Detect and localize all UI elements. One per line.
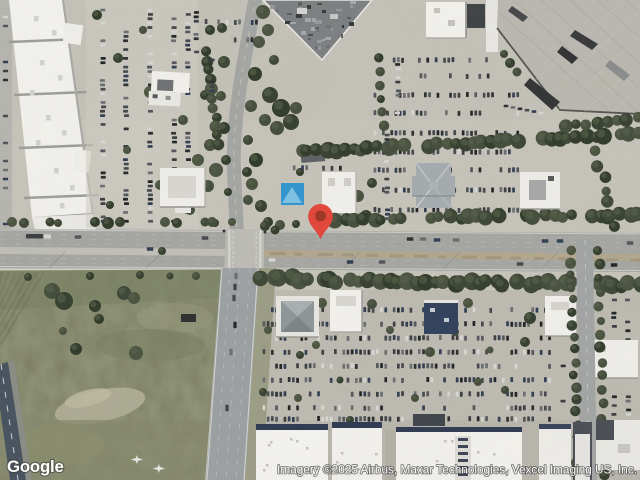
svg-text:Google: Google <box>7 457 64 476</box>
svg-text:Imagery ©2025 Airbus, Maxar Te: Imagery ©2025 Airbus, Maxar Technologies… <box>277 463 637 477</box>
